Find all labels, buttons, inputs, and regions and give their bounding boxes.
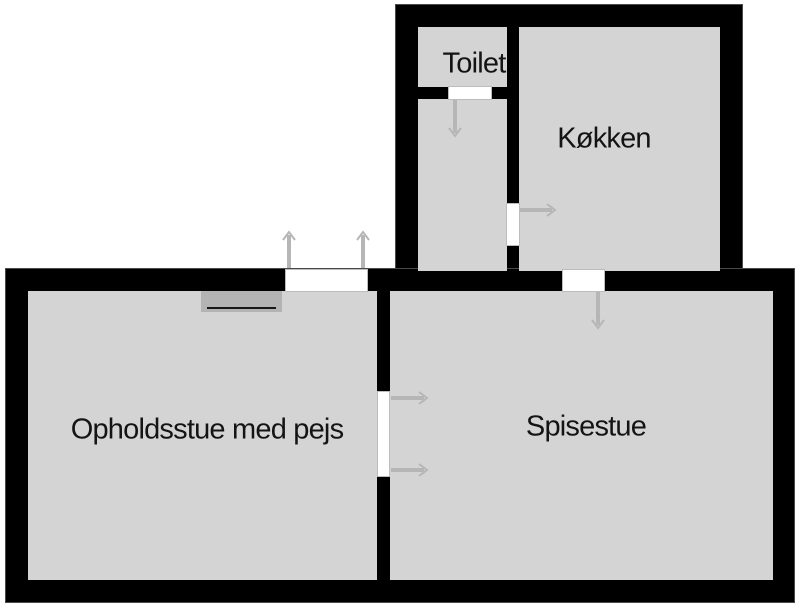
room-floor-hall <box>418 99 507 271</box>
door-opening-toilet <box>448 86 492 100</box>
fireplace-opening-line <box>207 307 276 309</box>
door-opening-kitchen-dining <box>562 269 605 292</box>
fireplace <box>201 291 282 312</box>
room-label-toilet: Toilet <box>443 48 506 81</box>
floor-plan: Toilet Køkken Opholdsstue med pejs Spise… <box>0 0 800 608</box>
door-swing-icon <box>283 232 295 268</box>
room-label-living-room: Opholdsstue med pejs <box>71 414 344 447</box>
door-opening-living-dining <box>377 391 390 477</box>
door-swing-icon <box>357 232 369 268</box>
door-opening-hall-kitchen <box>506 203 520 246</box>
room-label-dining-room: Spisestue <box>526 411 646 444</box>
door-opening-living-exterior <box>285 269 368 292</box>
room-label-kitchen: Køkken <box>557 123 651 156</box>
